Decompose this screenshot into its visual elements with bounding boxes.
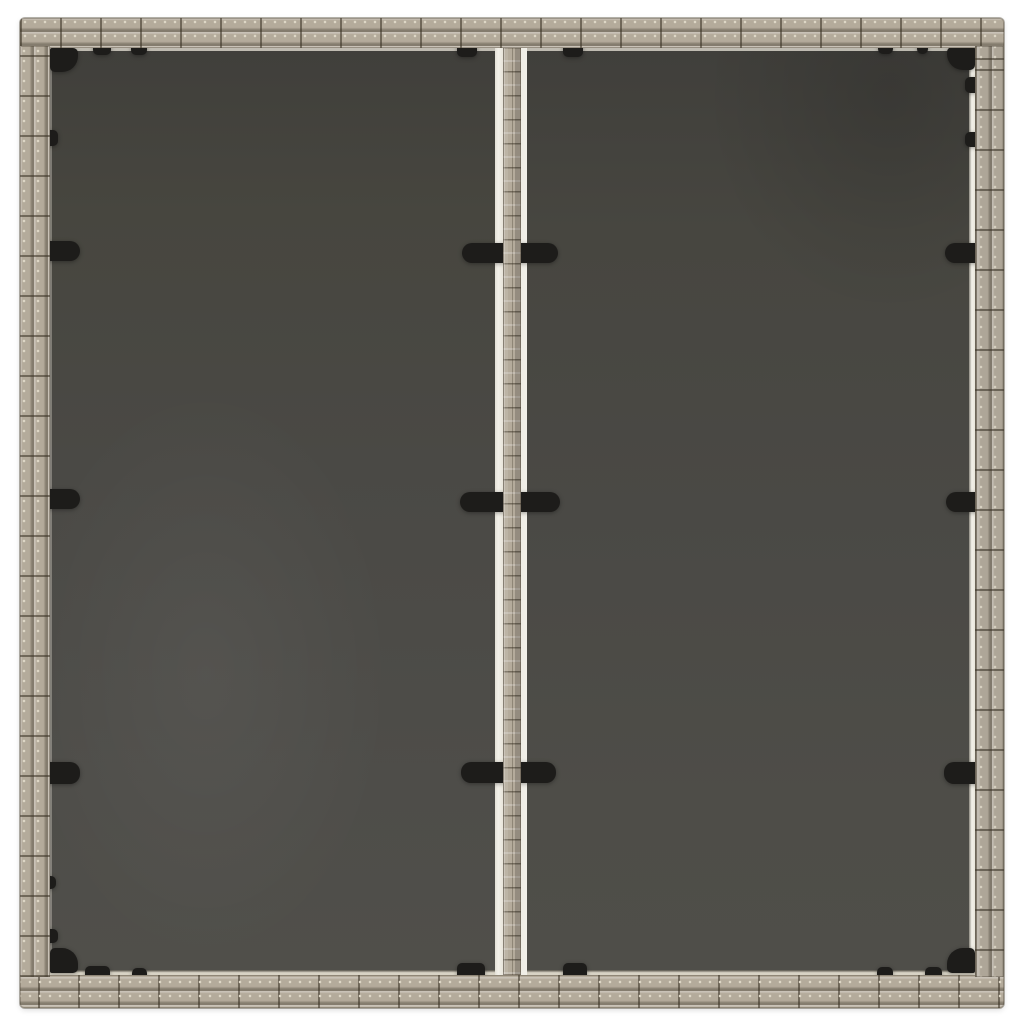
rattan-frame-bottom xyxy=(20,975,1004,1008)
glass-clip xyxy=(462,243,506,263)
rattan-frame-right xyxy=(975,46,1004,977)
tabletop-inner xyxy=(50,47,975,975)
glass-panel-left xyxy=(50,47,495,970)
glass-clip xyxy=(518,492,560,512)
table-top xyxy=(20,18,1004,1008)
rattan-frame-top xyxy=(20,18,1004,48)
glass-clip xyxy=(461,762,506,783)
glass-clip xyxy=(518,243,558,263)
photo-caption: Top-down product photograph of a square … xyxy=(0,0,1,1)
divider-rattan-strip xyxy=(503,47,521,975)
glass-panel-right xyxy=(527,47,969,970)
rattan-frame-left xyxy=(20,46,50,977)
glass-clip xyxy=(460,492,506,512)
glass-clip xyxy=(947,948,975,973)
glass-clip xyxy=(518,762,556,783)
product-photo: Top-down product photograph of a square … xyxy=(0,0,1024,1024)
